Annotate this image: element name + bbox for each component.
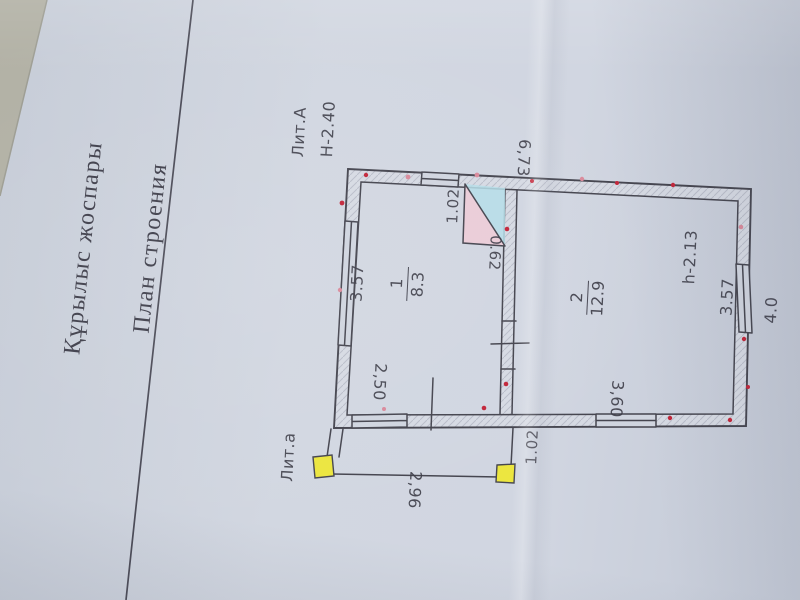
dim-room1-side: 3.57 [347, 264, 368, 303]
dim-top-width: 6,73 [514, 139, 535, 178]
liter-label-porch: Лит.а [277, 432, 299, 482]
room-height-label: h-2.13 [679, 229, 701, 284]
dim-right-depth: 4.0 [761, 296, 781, 324]
dim-porch-width: 2,96 [405, 471, 426, 510]
room1-number-area: 1 8.3 [387, 266, 429, 302]
room-number: 1 [388, 278, 407, 289]
porch-post [313, 455, 334, 478]
dim-room1-bottom: 2,50 [370, 363, 391, 402]
room-number: 2 [568, 292, 587, 303]
door-opening-mark [491, 343, 529, 344]
liter-label-main: Лит.А [288, 106, 310, 157]
dim-room2-side: 3.57 [717, 278, 738, 317]
room2-number-area: 2 12.9 [567, 279, 609, 317]
dim-stove-depth: 0.62 [485, 235, 505, 271]
dim-porch-side: 1.02 [522, 429, 542, 465]
porch-right-edge [511, 428, 513, 466]
room-area: 8.3 [409, 271, 429, 297]
dim-room2-bottom: 3,60 [607, 380, 628, 419]
photographed-floor-plan-page: Құрылыс жоспары План строения Лит.А Н-2.… [0, 0, 800, 600]
building-height-label: Н-2.40 [317, 100, 339, 157]
porch-post [496, 464, 515, 483]
room-area: 12.9 [589, 280, 609, 317]
porch-left-edge [327, 429, 343, 457]
dim-stove-width: 1.02 [443, 188, 463, 224]
